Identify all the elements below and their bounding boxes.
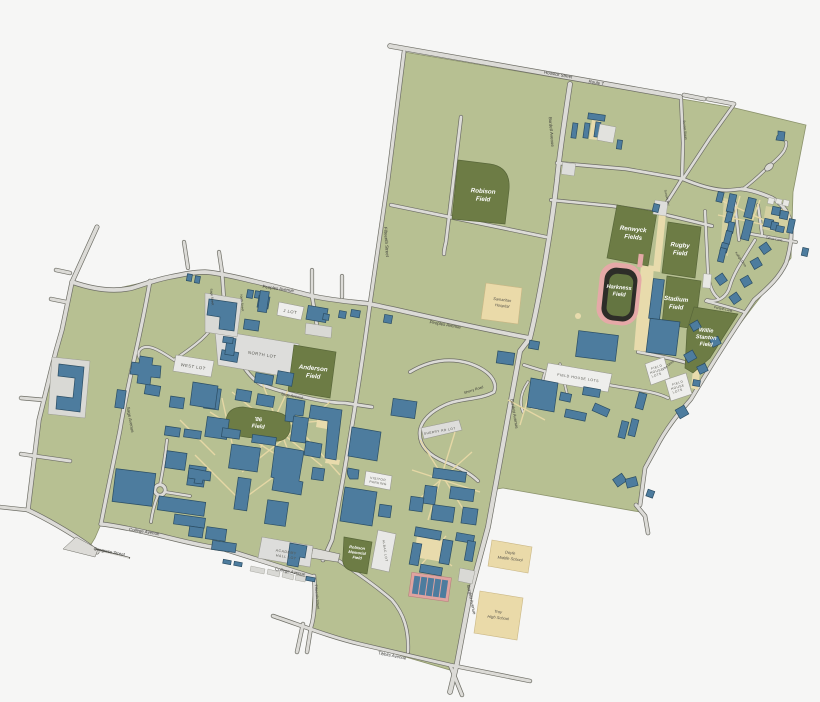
svg-text:Field: Field: [476, 196, 491, 204]
svg-text:Field: Field: [673, 249, 688, 257]
svg-text:Field: Field: [669, 303, 684, 311]
svg-text:Willie: Willie: [699, 327, 714, 334]
svg-text:Field: Field: [612, 291, 626, 298]
svg-text:Field: Field: [699, 341, 713, 348]
